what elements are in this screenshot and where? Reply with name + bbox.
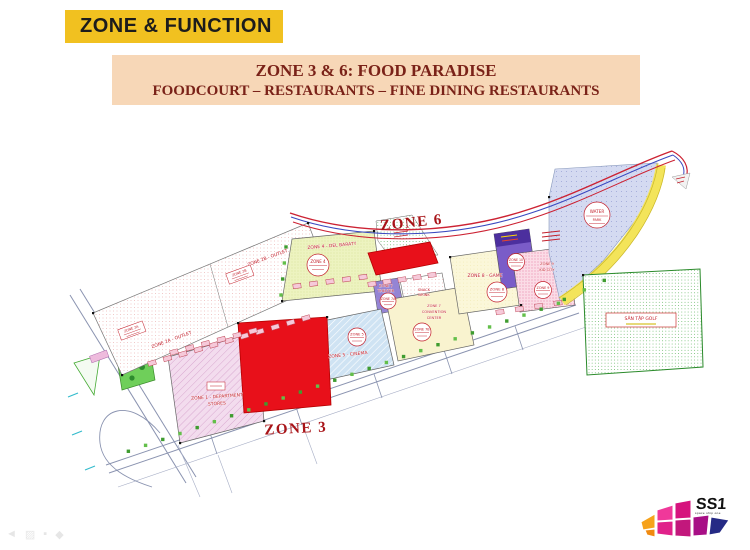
zone10-badge: ZONE 10 xyxy=(508,254,525,271)
watermark-icon: ◆ xyxy=(55,528,63,541)
watermark-icon: ◄ xyxy=(6,528,17,541)
zone6-label: ZONE 6 xyxy=(380,212,444,234)
zone5-badge: ZONE 5 xyxy=(348,328,366,346)
zone4-badge: ZONE 4 xyxy=(307,254,329,276)
site-plan-map: ZONE 6 ZONE 3 ZONE 2B - OUTLET ZONE 2A -… xyxy=(60,135,710,505)
zone-4-parcel xyxy=(282,231,382,301)
watermark-icons: ◄ ▨ ▪ ◆ xyxy=(6,528,64,541)
zone9-label-2: KID CITY xyxy=(539,268,555,272)
svg-text:WATER: WATER xyxy=(590,209,605,214)
slide-title-bar: ZONE & FUNCTION xyxy=(65,10,283,43)
ss1-logo: SS1 space ship one xyxy=(633,490,741,546)
water-park-badge: WATER PARK xyxy=(584,202,610,228)
zone7-convention-label-3: CENTER xyxy=(427,316,442,320)
zone7a-badge: ZONE 7A xyxy=(380,293,396,309)
banner-subtitle: FOODCOURT – RESTAURANTS – FINE DINING RE… xyxy=(152,83,599,100)
zone3-label: ZONE 3 xyxy=(264,419,328,438)
golf-label-box: SÂN TẬP GOLF xyxy=(606,313,676,327)
snack-label-2: DRINK xyxy=(418,293,430,297)
svg-text:ZONE 4: ZONE 4 xyxy=(310,259,326,264)
zone7-convention-label-1: ZONE 7 xyxy=(427,304,441,308)
snack-label-1: SNACK xyxy=(418,288,431,292)
svg-text:ZONE 7A: ZONE 7A xyxy=(381,297,397,301)
zone8-game-label: ZONE 8 - GAME xyxy=(468,273,503,279)
svg-text:ZONE 8: ZONE 8 xyxy=(490,287,505,292)
svg-text:ZONE 7B: ZONE 7B xyxy=(414,328,430,332)
ss1-logo-tagline: space ship one xyxy=(695,511,721,515)
zone7-theater-label-1: ZONE 7 xyxy=(379,284,393,288)
watermark-icon: ▨ xyxy=(25,528,35,541)
slide: ZONE & FUNCTION ZONE 3 & 6: FOOD PARADIS… xyxy=(0,0,750,550)
zone7-theater-label-2: THEATER xyxy=(377,289,395,293)
zone9-label-1: ZONE 9 xyxy=(540,262,554,266)
zone9-badge: ZONE 9 xyxy=(535,282,552,299)
zone8-badge: ZONE 8 xyxy=(487,282,507,302)
banner-title: ZONE 3 & 6: FOOD PARADISE xyxy=(256,61,497,81)
zone7-convention-label-2: CONVENTION xyxy=(422,310,447,314)
zone6-food-highlight xyxy=(368,242,438,275)
zone1-badge-box xyxy=(207,382,225,390)
golf-label: SÂN TẬP GOLF xyxy=(625,315,658,322)
zone-banner: ZONE 3 & 6: FOOD PARADISE FOODCOURT – RE… xyxy=(112,55,640,105)
svg-text:PARK: PARK xyxy=(593,218,603,222)
slide-title: ZONE & FUNCTION xyxy=(80,15,272,38)
svg-text:ZONE 5: ZONE 5 xyxy=(350,333,364,337)
watermark-icon: ▪ xyxy=(43,528,47,541)
svg-text:ZONE 9: ZONE 9 xyxy=(537,286,550,290)
zone1-label-2: STORES xyxy=(208,400,226,407)
site-plan-svg: ZONE 6 ZONE 3 ZONE 2B - OUTLET ZONE 2A -… xyxy=(60,135,710,505)
zone7b-badge: ZONE 7B xyxy=(413,323,431,341)
svg-text:ZONE 10: ZONE 10 xyxy=(509,258,523,262)
